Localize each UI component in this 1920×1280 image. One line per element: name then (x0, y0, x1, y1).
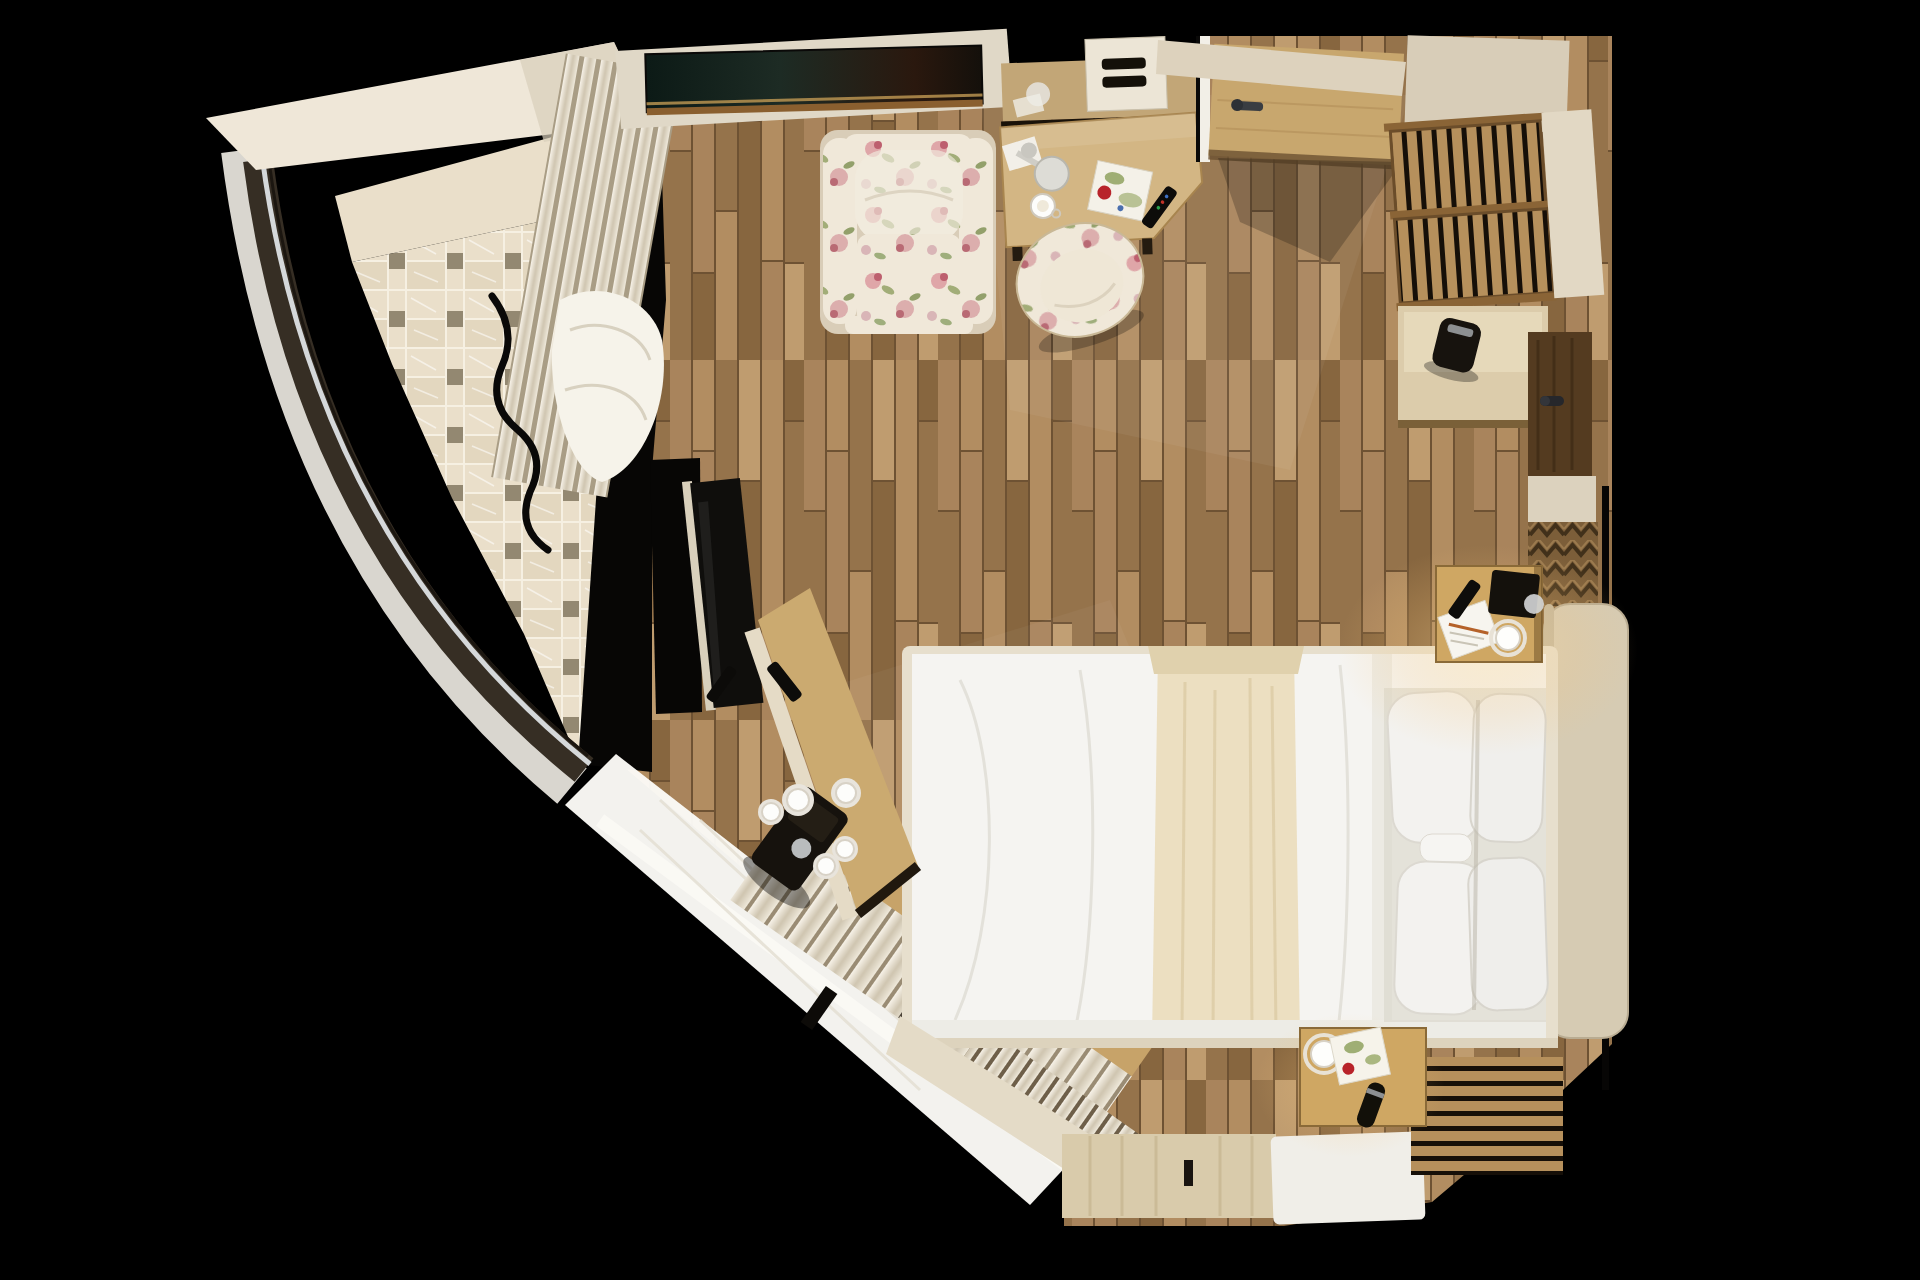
shelf-unit (1085, 37, 1167, 112)
accent-roll-pillow (1420, 834, 1472, 862)
armchair-arm-left (823, 138, 857, 324)
threshold-panel (1062, 1134, 1276, 1218)
armchair-arm-right (959, 138, 993, 324)
slatted-rack-1 (1390, 121, 1545, 213)
floral-card (1330, 1027, 1391, 1085)
pillow-4 (1467, 857, 1548, 1012)
armchair-seat (857, 234, 961, 326)
nightstand-top (1338, 545, 1638, 755)
slatted-rack-2 (1394, 209, 1553, 304)
magazine (1088, 160, 1153, 221)
cup-nightstand-top (1491, 621, 1525, 655)
minibar-cabinet (1398, 306, 1548, 428)
bed-runner (1148, 646, 1304, 1044)
room-render (0, 0, 1920, 1280)
luggage-bench (1384, 109, 1605, 311)
scene-hotel-room-top-view (0, 0, 1920, 1280)
wall-segment (1528, 476, 1596, 522)
floral-armchair (820, 130, 996, 334)
water-glass (1524, 594, 1544, 614)
threshold-handle (1184, 1160, 1193, 1186)
nightstand-bottom (1255, 1013, 1445, 1157)
desk-lamp-shade (1034, 156, 1069, 191)
